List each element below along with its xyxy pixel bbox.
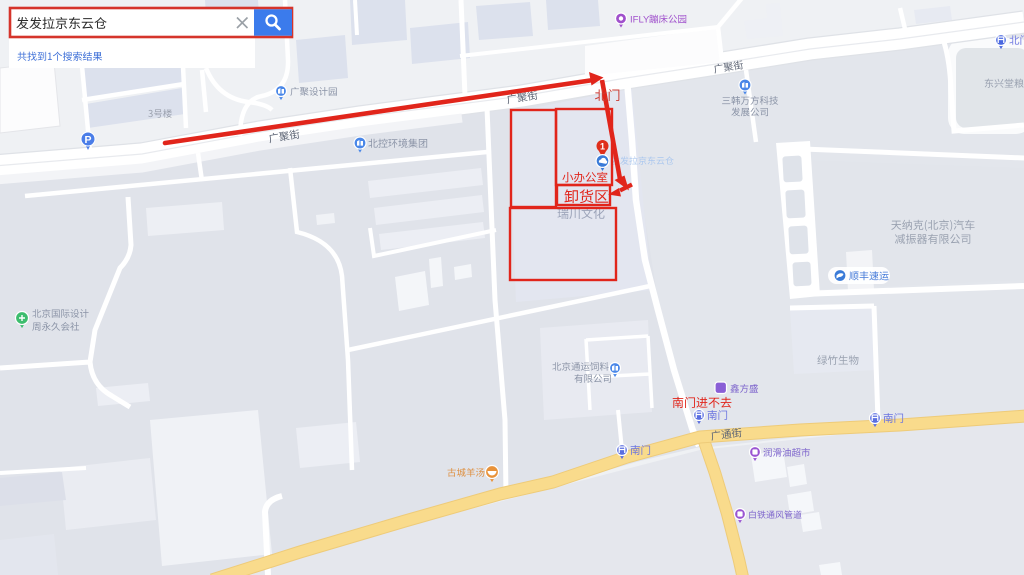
svg-text:IFLY: IFLY	[630, 15, 650, 26]
svg-text:1: 1	[600, 141, 605, 151]
svg-text:P: P	[84, 134, 91, 146]
